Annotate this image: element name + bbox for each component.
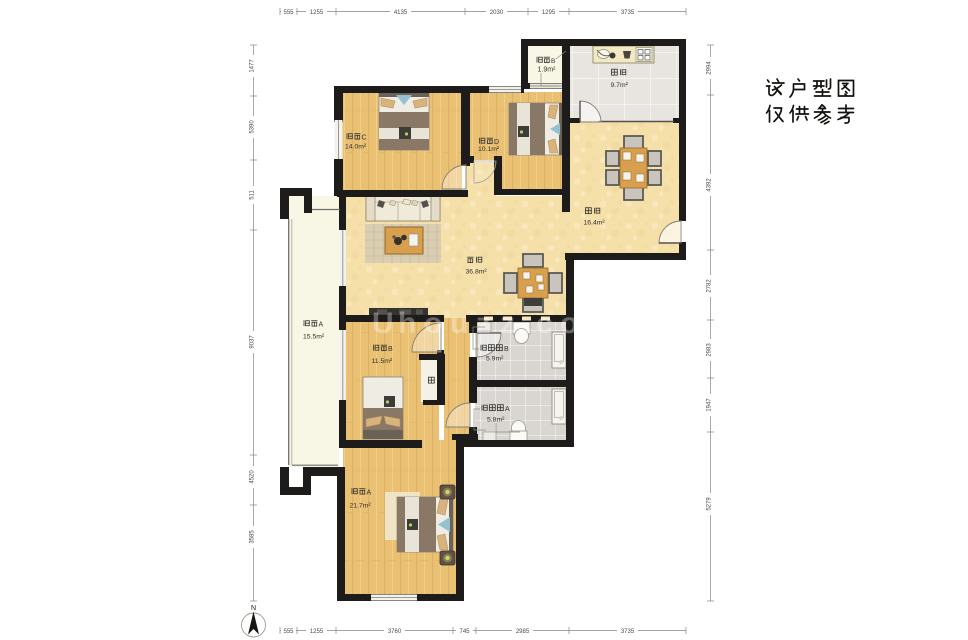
svg-text:555: 555 xyxy=(283,629,294,635)
svg-text:c: c xyxy=(536,307,553,340)
svg-text:2030: 2030 xyxy=(490,10,504,16)
svg-text:36.8m²: 36.8m² xyxy=(466,269,488,276)
svg-text:2983: 2983 xyxy=(707,343,713,357)
svg-text:z: z xyxy=(500,307,515,340)
svg-text:9.7m²: 9.7m² xyxy=(611,82,629,89)
svg-text:h: h xyxy=(398,307,416,340)
svg-text:A: A xyxy=(319,321,324,328)
svg-text:3735: 3735 xyxy=(621,629,635,635)
svg-text:5.8m²: 5.8m² xyxy=(487,417,505,424)
svg-text:C: C xyxy=(362,134,367,141)
svg-text:21.7m²: 21.7m² xyxy=(350,503,372,510)
svg-text:9037: 9037 xyxy=(250,335,256,349)
svg-text:2782: 2782 xyxy=(707,279,713,293)
svg-text:11.5m²: 11.5m² xyxy=(372,358,393,365)
svg-text:2985: 2985 xyxy=(516,629,530,635)
svg-text:N: N xyxy=(251,605,256,612)
svg-text:A: A xyxy=(367,489,372,496)
svg-text:16.4m²: 16.4m² xyxy=(584,220,606,227)
svg-text:3735: 3735 xyxy=(621,10,635,16)
svg-text:1477: 1477 xyxy=(250,59,256,73)
svg-text:z: z xyxy=(476,307,491,340)
svg-text:1295: 1295 xyxy=(542,10,556,16)
svg-text:4520: 4520 xyxy=(250,470,256,484)
svg-text:3760: 3760 xyxy=(388,629,402,635)
svg-text:1.9m²: 1.9m² xyxy=(538,67,557,74)
svg-text:5390: 5390 xyxy=(250,120,256,134)
svg-text:1255: 1255 xyxy=(310,10,324,16)
svg-text:B: B xyxy=(388,346,393,353)
svg-text:.: . xyxy=(524,307,532,340)
svg-text:745: 745 xyxy=(459,629,470,635)
svg-text:14.0m²: 14.0m² xyxy=(345,144,367,151)
svg-text:1255: 1255 xyxy=(310,629,324,635)
svg-text:15.5m²: 15.5m² xyxy=(303,334,325,341)
svg-text:o: o xyxy=(560,307,578,340)
svg-text:B: B xyxy=(504,346,509,353)
svg-text:5.9m²: 5.9m² xyxy=(486,356,504,363)
svg-text:4392: 4392 xyxy=(707,178,713,192)
svg-text:4135: 4135 xyxy=(394,10,408,16)
svg-text:U: U xyxy=(372,307,394,340)
svg-text:511: 511 xyxy=(250,190,256,200)
svg-text:1947: 1947 xyxy=(707,398,713,412)
svg-text:10.1m²: 10.1m² xyxy=(478,146,500,153)
svg-text:o: o xyxy=(424,307,442,340)
svg-text:2994: 2994 xyxy=(707,61,713,75)
svg-text:555: 555 xyxy=(283,10,294,16)
svg-text:3585: 3585 xyxy=(250,530,256,544)
svg-text:B: B xyxy=(551,58,555,65)
svg-text:5279: 5279 xyxy=(707,497,713,511)
svg-text:D: D xyxy=(494,139,499,146)
svg-text:u: u xyxy=(450,307,468,340)
svg-text:A: A xyxy=(505,406,510,413)
